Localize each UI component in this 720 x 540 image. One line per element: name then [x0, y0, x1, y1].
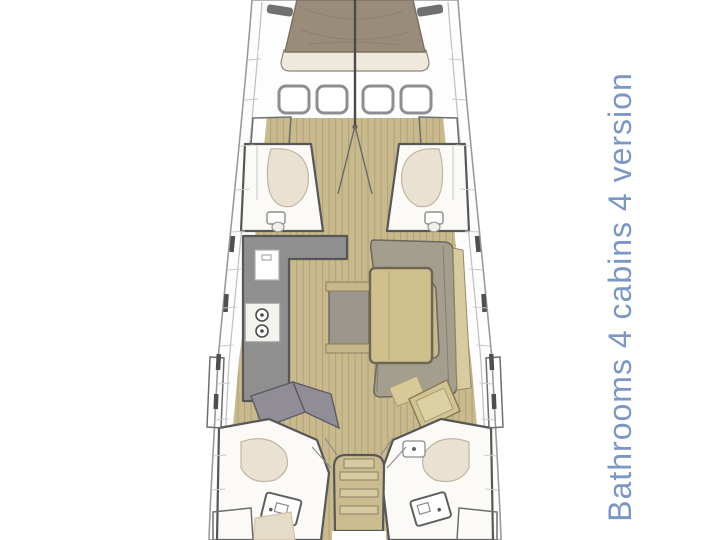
stair-step	[340, 489, 378, 497]
bench-cap	[326, 282, 372, 291]
toilet-bowl	[428, 222, 440, 232]
deck-hatch	[317, 86, 347, 113]
plan-caption: Bathrooms 4 cabins 4 version	[602, 72, 638, 522]
aft-head-starboard	[381, 419, 493, 540]
stair-step	[344, 459, 374, 468]
deck-hatch	[363, 86, 393, 113]
companionway-opening	[332, 531, 386, 540]
toilet-bowl	[272, 222, 284, 232]
floorplan-canvas: Bathrooms 4 cabins 4 version	[0, 0, 720, 540]
stair-step	[340, 472, 378, 480]
saloon-table	[370, 268, 432, 363]
flush-button	[412, 447, 416, 451]
deck-hatch	[279, 86, 309, 113]
stair-step	[340, 506, 378, 514]
bench-cap	[326, 344, 372, 353]
burner-center	[260, 329, 264, 333]
burner-center	[260, 313, 264, 317]
forward-head-starboard	[387, 144, 469, 232]
saloon-bench	[326, 282, 372, 353]
forward-head-port	[241, 144, 323, 232]
deck-hatch	[401, 86, 431, 113]
yacht-hull-plan	[207, 0, 503, 540]
yacht-floorplan-page: Bathrooms 4 cabins 4 version	[0, 0, 720, 540]
